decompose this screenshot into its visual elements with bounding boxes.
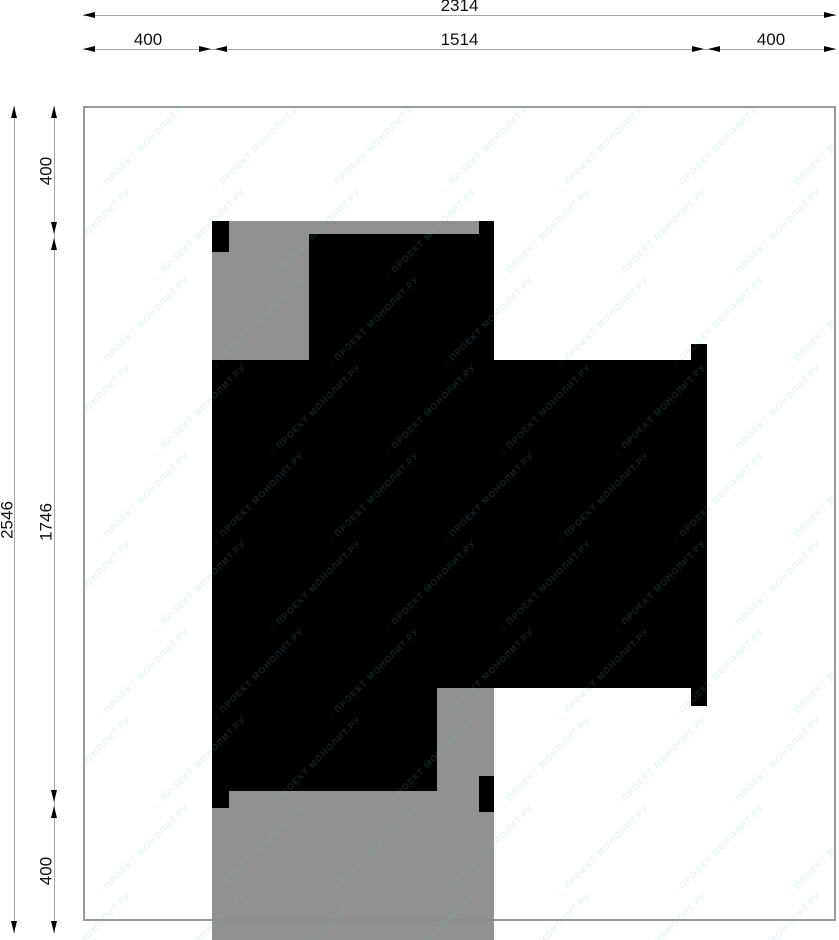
dim-top-seg-right-label: 400 — [706, 31, 836, 48]
dim-top-segments-line — [83, 49, 836, 50]
pillar — [691, 344, 707, 360]
pillar — [479, 776, 494, 812]
dim-left-seg-top-label: 400 — [38, 157, 55, 185]
pillar — [212, 791, 229, 808]
dim-top-seg-mid-label: 1514 — [213, 31, 706, 48]
terrace-top-strip — [212, 221, 479, 234]
arrow-down-icon — [11, 921, 17, 933]
building-main-block — [212, 360, 707, 688]
dim-top-seg-left-label: 400 — [83, 31, 213, 48]
dim-left-seg-mid-label: 1746 — [38, 503, 55, 541]
building-lower-block — [212, 688, 437, 791]
pillar — [479, 221, 494, 236]
dim-top-total-label: 2314 — [83, 0, 836, 14]
building-upper-block — [309, 234, 494, 361]
arrow-up-icon — [51, 238, 57, 250]
site-plan-canvas: 2314 400 1514 400 2546 400 1746 400 ⌂ ПР… — [0, 0, 839, 940]
driveway — [212, 791, 494, 940]
dim-left-seg-bottom-label: 400 — [38, 857, 55, 885]
arrow-down-icon — [51, 790, 57, 802]
pillar — [212, 221, 229, 252]
arrow-down-icon — [51, 222, 57, 234]
arrow-down-icon — [51, 921, 57, 933]
arrow-up-icon — [51, 106, 57, 118]
dim-left-total-label: 2546 — [0, 501, 16, 539]
arrow-up-icon — [51, 806, 57, 818]
pillar — [691, 688, 707, 706]
arrow-up-icon — [11, 106, 17, 118]
dim-top-total-line — [83, 15, 836, 16]
terrace-left — [212, 234, 309, 361]
boundary-across-driveway — [212, 919, 494, 921]
